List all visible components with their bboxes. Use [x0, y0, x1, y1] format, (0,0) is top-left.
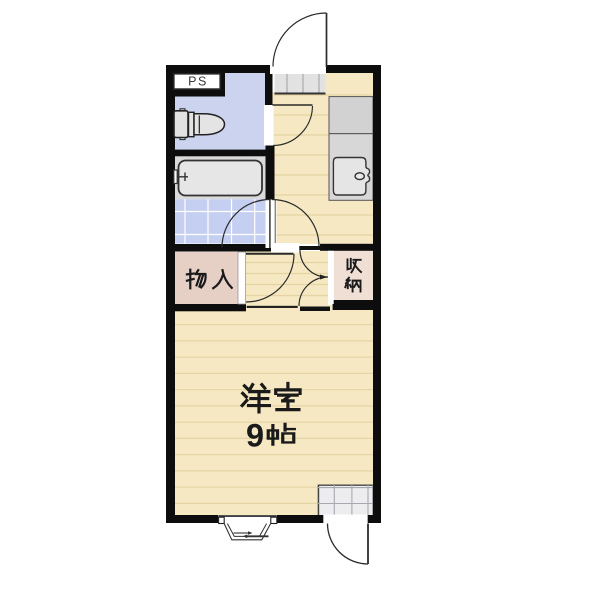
svg-text:PS: PS: [188, 74, 208, 88]
svg-text:9: 9: [246, 418, 264, 454]
